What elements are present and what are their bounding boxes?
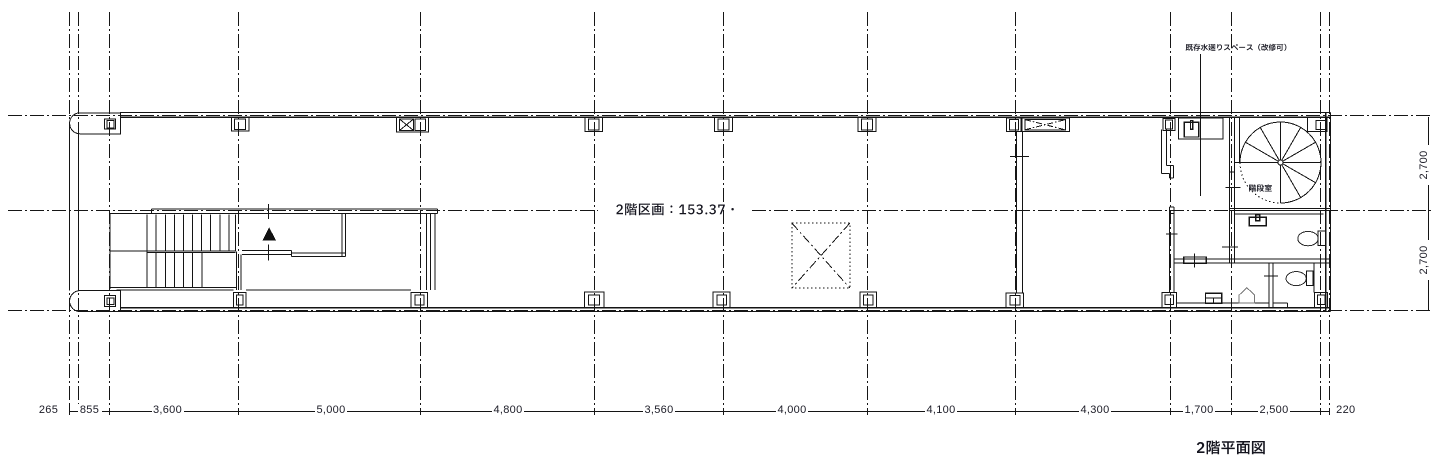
svg-text:4,800: 4,800 (493, 404, 522, 416)
svg-text:3,600: 3,600 (153, 404, 182, 416)
svg-text:1,700: 1,700 (1184, 404, 1213, 416)
svg-text:3,560: 3,560 (644, 404, 673, 416)
svg-text:5,000: 5,000 (316, 404, 345, 416)
svg-text:220: 220 (1336, 404, 1355, 416)
svg-text:2,700: 2,700 (1418, 245, 1430, 274)
svg-text:4,100: 4,100 (926, 404, 955, 416)
svg-text:4,000: 4,000 (777, 404, 806, 416)
svg-text:2,500: 2,500 (1259, 404, 1288, 416)
svg-text:2,700: 2,700 (1418, 150, 1430, 179)
svg-text:855: 855 (80, 404, 99, 416)
svg-text:4,300: 4,300 (1080, 404, 1109, 416)
svg-text:265: 265 (39, 404, 58, 416)
